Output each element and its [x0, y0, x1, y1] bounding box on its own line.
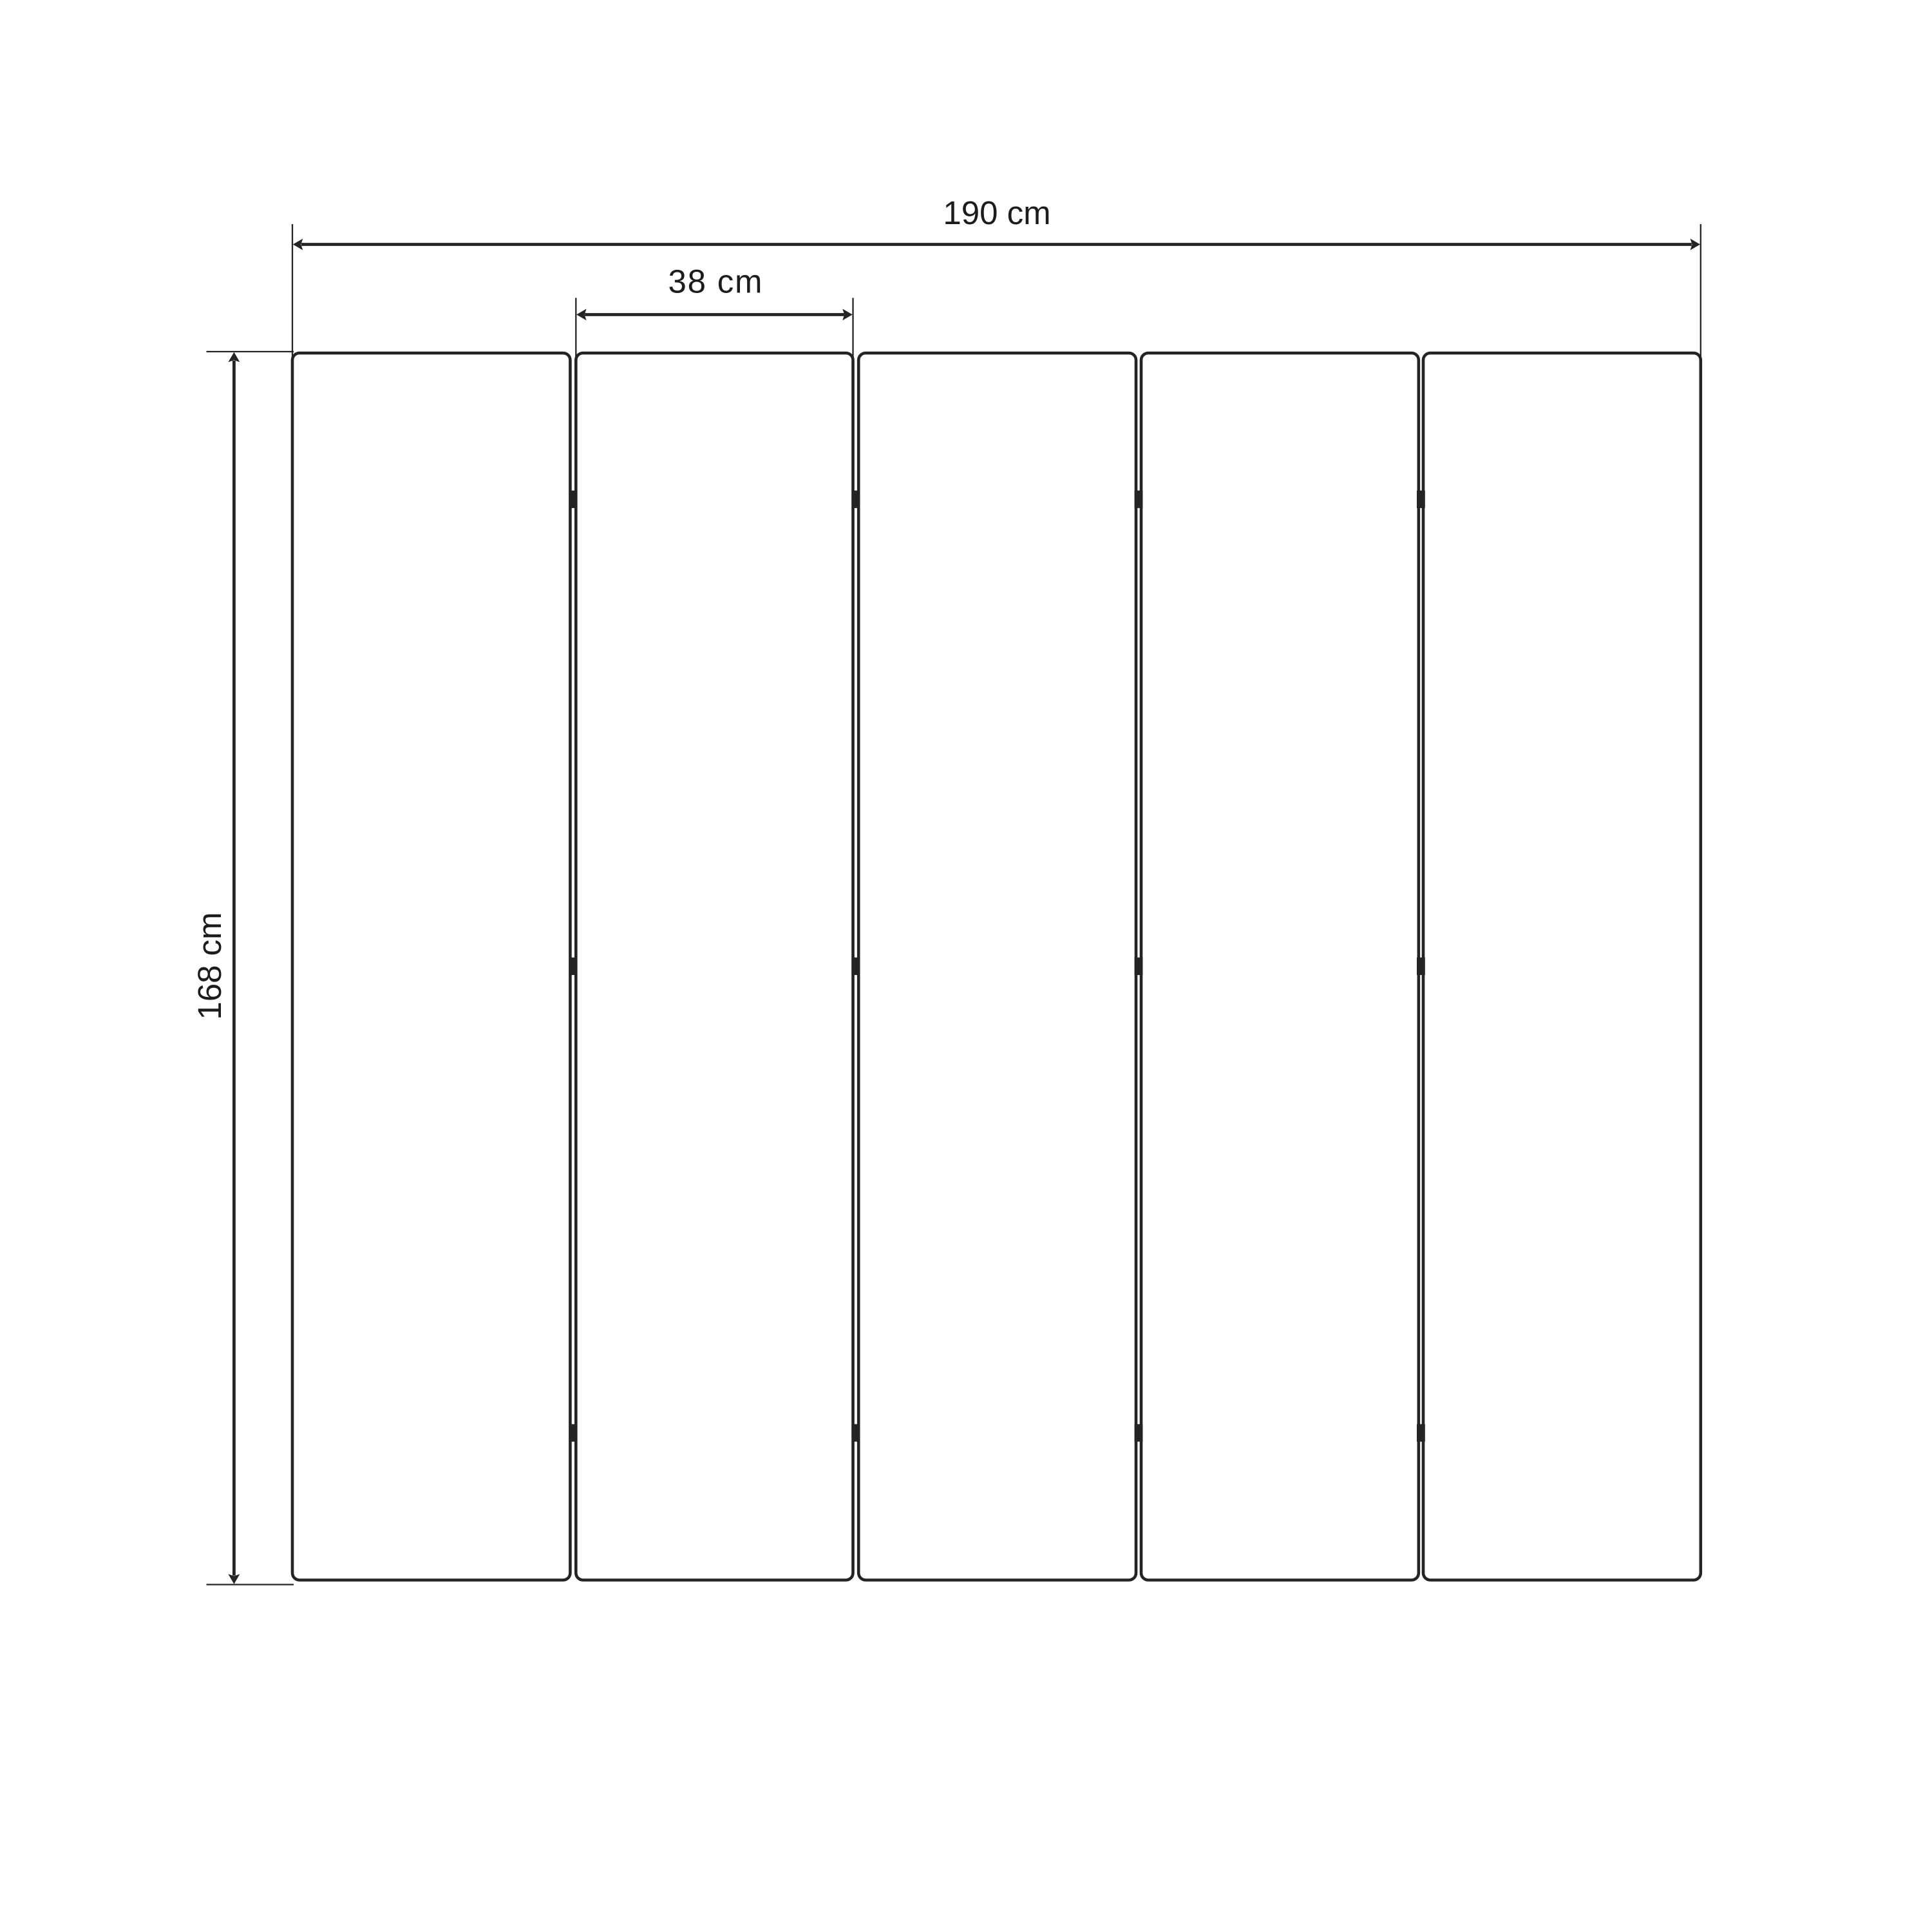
svg-text:190 cm: 190 cm [943, 194, 1050, 231]
svg-text:38 cm: 38 cm [668, 263, 763, 300]
svg-text:168 cm: 168 cm [191, 912, 228, 1019]
